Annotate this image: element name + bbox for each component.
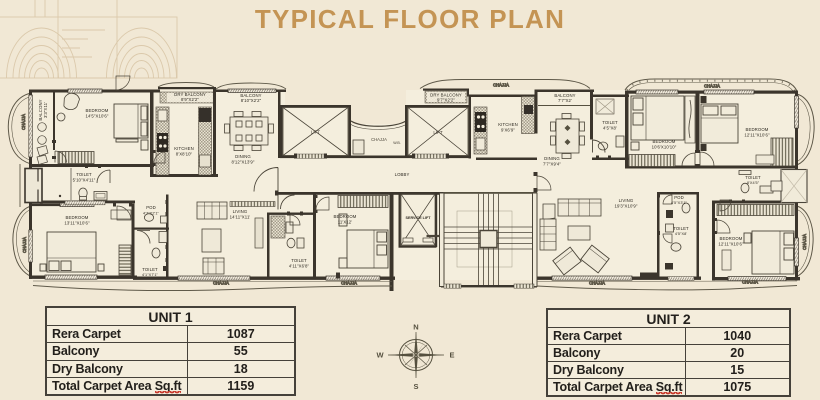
svg-text:3'3"X11': 3'3"X11': [43, 102, 48, 118]
svg-text:W.B.: W.B.: [393, 141, 401, 145]
svg-text:CHAJJA: CHAJJA: [371, 137, 387, 142]
svg-text:BEDROOM: BEDROOM: [653, 139, 676, 144]
svg-text:POD: POD: [146, 205, 156, 210]
svg-text:BEDROOM: BEDROOM: [334, 214, 357, 219]
svg-text:9'X6'9": 9'X6'9": [501, 128, 515, 133]
svg-text:LOBBY: LOBBY: [395, 172, 410, 177]
svg-text:KITCHEN: KITCHEN: [498, 122, 518, 127]
svg-text:TOILET: TOILET: [76, 172, 92, 177]
svg-text:4'11"X6'8": 4'11"X6'8": [289, 264, 310, 269]
svg-text:CHAJJA: CHAJJA: [589, 281, 605, 286]
svg-text:11'X12': 11'X12': [338, 220, 353, 225]
svg-text:CHAJJA: CHAJJA: [22, 237, 27, 253]
svg-text:TOILET: TOILET: [142, 267, 158, 272]
svg-text:8'X8'10": 8'X8'10": [176, 152, 193, 157]
svg-text:12'11"X10'6": 12'11"X10'6": [718, 242, 744, 247]
svg-text:10'6'X10'10": 10'6'X10'10": [652, 145, 677, 150]
svg-text:TOILET: TOILET: [291, 258, 307, 263]
svg-text:19'3"X10'9": 19'3"X10'9": [615, 204, 638, 209]
svg-text:8'12"X13'9": 8'12"X13'9": [232, 160, 255, 165]
svg-text:LIFT: LIFT: [433, 130, 443, 135]
svg-text:W: W: [376, 351, 384, 360]
svg-text:E: E: [449, 351, 454, 360]
svg-text:CHAJJA: CHAJJA: [742, 280, 758, 285]
svg-text:TOILET: TOILET: [673, 226, 689, 231]
svg-text:5'10"X4'11": 5'10"X4'11": [73, 178, 96, 183]
svg-text:CHAJJA: CHAJJA: [704, 84, 720, 89]
svg-text:DINING: DINING: [544, 156, 560, 161]
svg-text:8'X4'5": 8'X4'5": [747, 181, 760, 185]
svg-text:TOILET: TOILET: [745, 175, 761, 180]
svg-text:7'7"X9'4": 7'7"X9'4": [543, 162, 561, 167]
svg-text:8'10"X2'2": 8'10"X2'2": [241, 98, 262, 103]
svg-text:POD: POD: [674, 195, 684, 200]
svg-text:4'7"X2'1": 4'7"X2'1": [143, 212, 160, 216]
svg-text:4'5"X3'1": 4'5"X3'1": [671, 201, 688, 205]
svg-text:DINING: DINING: [235, 154, 251, 159]
svg-text:CHAJJA: CHAJJA: [21, 114, 26, 130]
svg-text:LIFT: LIFT: [311, 130, 321, 135]
svg-text:BEDROOM: BEDROOM: [66, 215, 89, 220]
svg-text:4'5"X8': 4'5"X8': [675, 232, 688, 236]
svg-text:LIVING: LIVING: [233, 209, 248, 214]
svg-text:CHAJJA: CHAJJA: [341, 281, 357, 286]
svg-text:CHAJJA: CHAJJA: [802, 234, 807, 250]
svg-text:S: S: [413, 382, 418, 391]
svg-text:13'11"X10'6": 13'11"X10'6": [64, 221, 90, 226]
svg-text:7'7"X2': 7'7"X2': [558, 98, 572, 103]
svg-text:LIVING: LIVING: [619, 198, 634, 203]
svg-text:CHAJJA: CHAJJA: [493, 83, 509, 88]
svg-text:CHAJJA: CHAJJA: [213, 281, 229, 286]
svg-text:8'9"X2'2": 8'9"X2'2": [181, 97, 199, 102]
svg-text:KITCHEN: KITCHEN: [174, 146, 194, 151]
svg-text:12'11"X10'6": 12'11"X10'6": [744, 133, 770, 138]
svg-text:4'5"X8': 4'5"X8': [603, 126, 617, 131]
svg-text:4'1"X7'1": 4'1"X7'1": [142, 273, 159, 277]
svg-text:BEDROOM: BEDROOM: [720, 236, 743, 241]
svg-text:BEDROOM: BEDROOM: [746, 127, 769, 132]
svg-text:BEDROOM: BEDROOM: [86, 108, 109, 113]
svg-text:9'7"X2'2": 9'7"X2'2": [437, 98, 455, 103]
svg-text:TOILET: TOILET: [602, 120, 618, 125]
svg-text:N: N: [413, 323, 418, 332]
svg-text:14'5"X10'6": 14'5"X10'6": [86, 114, 109, 119]
svg-text:SERVICE LIFT: SERVICE LIFT: [406, 216, 432, 220]
svg-text:14'11"X11': 14'11"X11': [230, 215, 251, 220]
